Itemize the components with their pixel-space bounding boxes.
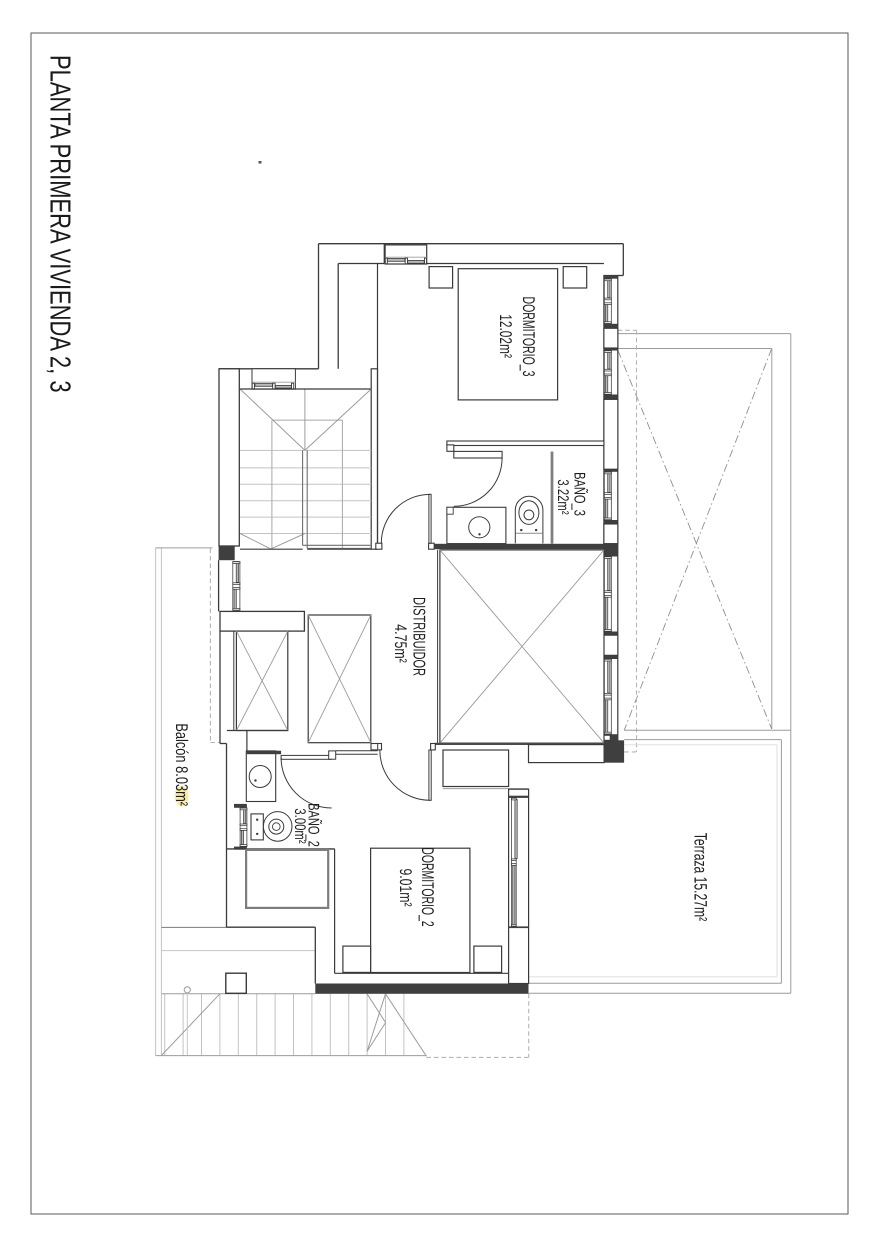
svg-text:4.75m²: 4.75m² [391,624,410,663]
svg-text:9.01m²: 9.01m² [396,868,415,906]
svg-text:3.22m²: 3.22m² [554,479,571,514]
svg-text:DORMITORIO_3: DORMITORIO_3 [519,296,538,376]
svg-text:Terraza 15.27m²: Terraza 15.27m² [691,833,711,921]
svg-text:BAÑO_3: BAÑO_3 [570,472,588,516]
svg-text:3.00m²: 3.00m² [291,808,308,843]
svg-text:12.02m²: 12.02m² [496,314,515,358]
svg-text:DISTRIBUIDOR: DISTRIBUIDOR [409,597,428,676]
svg-text:Balcón 8.03m²: Balcón 8.03m² [172,723,191,806]
svg-text:PLANTA PRIMERA VIVIENDA 2, 3: PLANTA PRIMERA VIVIENDA 2, 3 [44,55,76,393]
svg-text:DORMITORIO_2: DORMITORIO_2 [418,847,437,926]
